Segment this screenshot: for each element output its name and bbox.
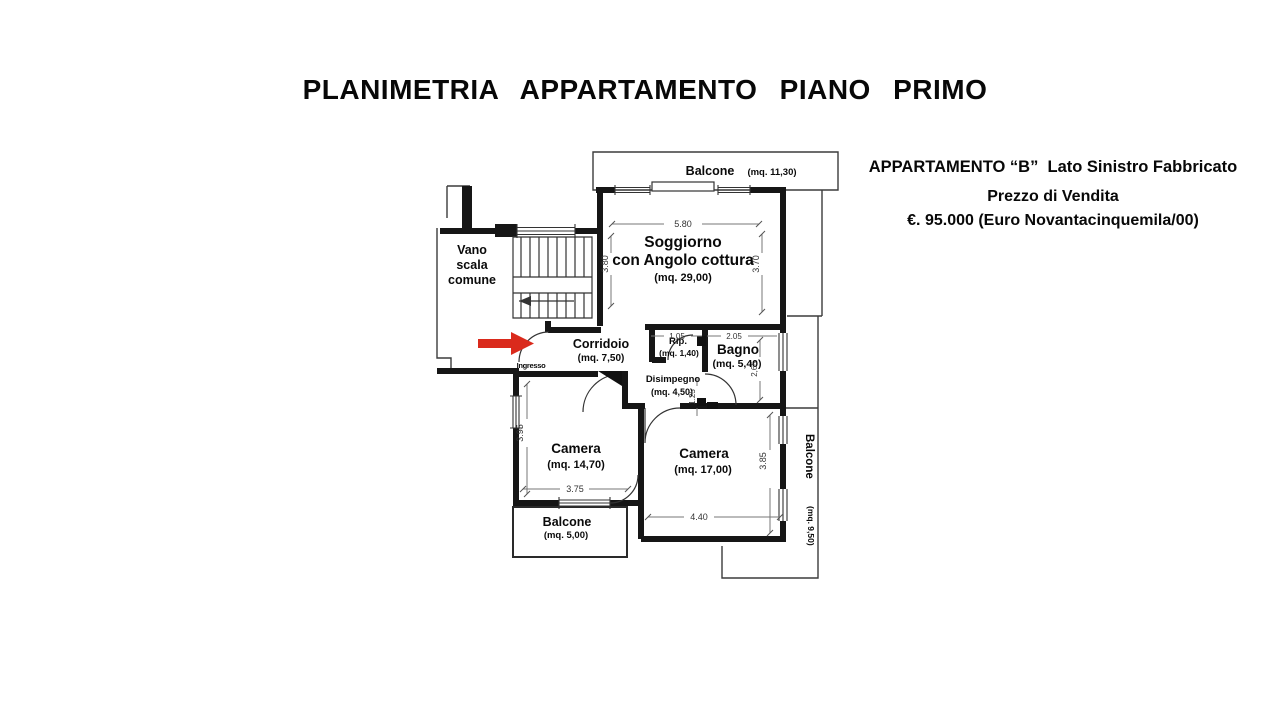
dim-camera-sx-altezza: 3.95: [515, 424, 525, 442]
page-title: PLANIMETRIA APPARTAMENTO PIANO PRIMO: [0, 74, 1280, 106]
ingresso-label: Ingresso: [517, 361, 547, 370]
soggiorno-label-1: Soggiorno: [644, 234, 722, 251]
building-outline: [437, 152, 838, 578]
rip-area: (mq. 1,40): [659, 348, 699, 358]
disimpegno-area: (mq. 4,50): [651, 387, 693, 397]
camera-sx-label: Camera: [551, 441, 601, 456]
bagno-label: Bagno: [717, 342, 759, 357]
floorplan-svg: Balcone (mq. 11,30) Soggiorno con Angolo…: [0, 0, 1280, 720]
disimpegno-label: Disimpegno: [646, 374, 701, 385]
balcone-top-label: Balcone: [686, 164, 735, 178]
balcone-dx-label: Balcone: [803, 434, 815, 479]
apartment-heading: APPARTAMENTO “B” Lato Sinistro Fabbricat…: [862, 158, 1244, 177]
balcone-sx-area: (mq. 5,00): [544, 530, 588, 541]
listing-info: APPARTAMENTO “B” Lato Sinistro Fabbricat…: [862, 158, 1244, 230]
dim-soggiorno-larghezza: 5.80: [674, 219, 692, 229]
vano-scala-label-2: scala: [456, 258, 488, 272]
corridoio-label: Corridoio: [573, 337, 630, 351]
door-triangle: [598, 371, 622, 386]
dim-soggiorno-alt-sx: 3.80: [600, 255, 610, 273]
stairs-icon: [513, 237, 592, 318]
camera-sx-area: (mq. 14,70): [547, 459, 605, 471]
vano-scala-label-1: Vano: [457, 243, 487, 257]
price-value: €. 95.000 (Euro Novantacinquemila/00): [862, 212, 1244, 230]
balcone-top-area: (mq. 11,30): [747, 167, 796, 178]
entrance-arrow-icon: [478, 332, 534, 355]
vano-scala-label-3: comune: [448, 273, 496, 287]
balcone-dx-area: (mq. 9,50): [806, 506, 816, 546]
floor-plan-page: PLANIMETRIA APPARTAMENTO PIANO PRIMO APP…: [0, 0, 1280, 720]
dim-soggiorno-alt-dx: 3.70: [751, 255, 761, 273]
dim-rip-larghezza: 1.05: [669, 332, 685, 341]
door-pivot-bagno: [697, 398, 706, 406]
dim-bagno-altezza: 2,65: [750, 361, 759, 377]
camera-dx-label: Camera: [679, 446, 729, 461]
dim-camera-dx-larghezza: 4.40: [690, 512, 708, 522]
dim-camera-dx-altezza: 3.85: [758, 452, 768, 470]
dim-disimpegno-altezza: 1.25: [688, 389, 697, 405]
soggiorno-area: (mq. 29,00): [654, 272, 712, 284]
door-pivot-camera: [707, 402, 718, 409]
sliding-door: [652, 182, 714, 191]
dim-camera-sx-larghezza: 3.75: [566, 484, 584, 494]
dim-bagno-larghezza: 2.05: [726, 332, 742, 341]
price-caption: Prezzo di Vendita: [862, 188, 1244, 206]
door-pivot-rip: [697, 336, 706, 346]
camera-dx-area: (mq. 17,00): [674, 464, 732, 476]
stair-wall-block: [495, 224, 517, 237]
wall-pier: [462, 186, 472, 230]
corridoio-area: (mq. 7,50): [578, 353, 625, 364]
balcone-sx-label: Balcone: [543, 515, 592, 529]
soggiorno-label-2: con Angolo cottura: [612, 252, 754, 269]
